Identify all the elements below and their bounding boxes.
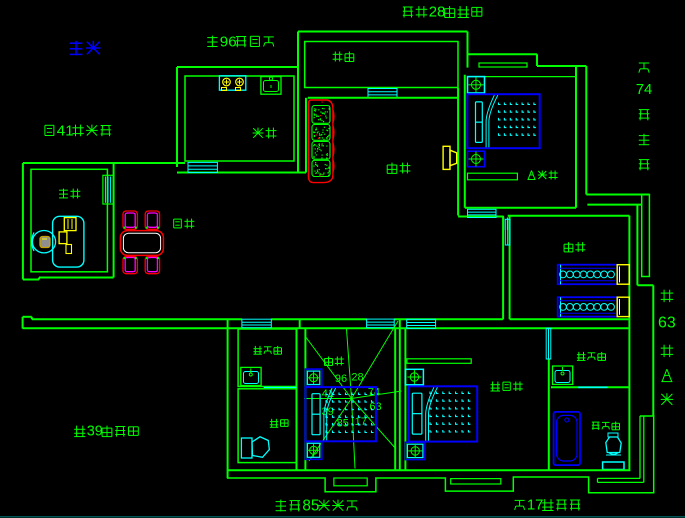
- svg-text:39: 39: [87, 424, 103, 440]
- svg-text:96: 96: [220, 33, 237, 50]
- svg-text:28: 28: [351, 372, 363, 384]
- svg-text:17: 17: [527, 498, 544, 514]
- svg-text:96: 96: [335, 373, 347, 385]
- svg-text:41: 41: [57, 122, 74, 139]
- svg-text:85: 85: [337, 418, 349, 430]
- svg-text:85: 85: [302, 497, 319, 514]
- svg-text:63: 63: [658, 315, 676, 332]
- svg-text:28: 28: [429, 5, 446, 21]
- svg-text:74: 74: [636, 82, 653, 98]
